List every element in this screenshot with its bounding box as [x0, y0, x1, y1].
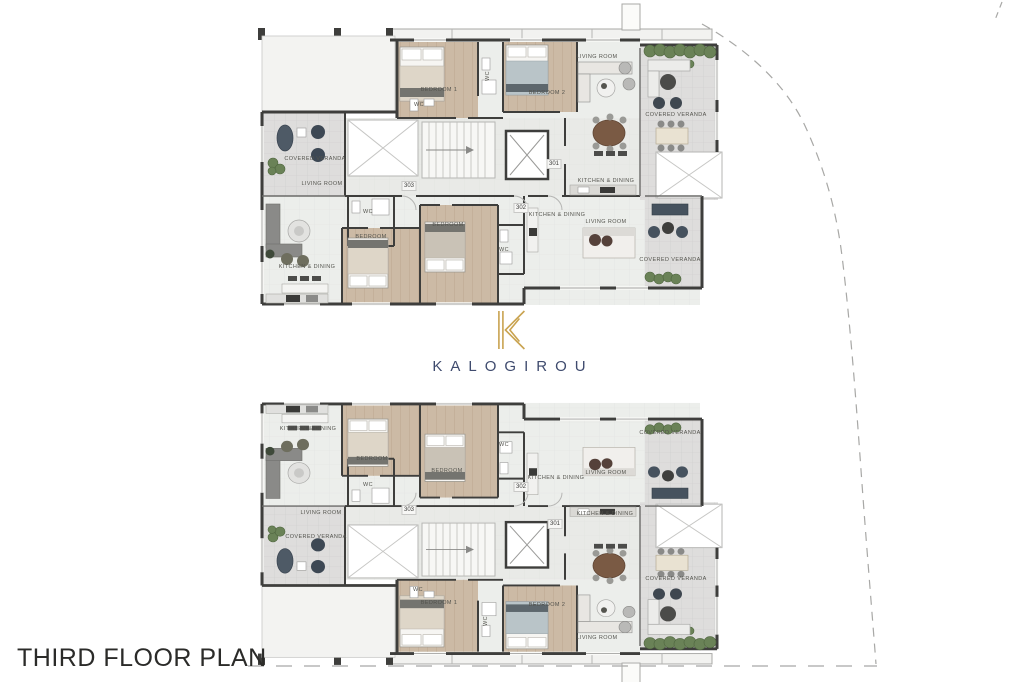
- room-label-kitchen-dining: KITCHEN & DINING: [279, 264, 336, 270]
- room-label-kitchen-dining: KITCHEN & DINING: [529, 212, 586, 218]
- room-label-bedroom-1: BEDROOM 1: [421, 600, 458, 606]
- logo-k-mark-icon: [490, 310, 528, 350]
- page-title: THIRD FLOOR PLAN: [17, 644, 267, 673]
- room-label-covered-veranda: COVERED VERANDA: [285, 534, 346, 540]
- unit-number-302: 302: [513, 203, 528, 213]
- room-label-living-room: LIVING ROOM: [576, 635, 617, 641]
- brand-logo-text: KALOGIROU: [424, 358, 593, 375]
- room-label-living-room: LIVING ROOM: [301, 181, 342, 187]
- room-label-wc: WC: [499, 442, 509, 448]
- room-label-bedroom: BEDROOM: [355, 234, 386, 240]
- room-label-living-room: LIVING ROOM: [576, 54, 617, 60]
- room-label-kitchen-dining: KITCHEN & DINING: [577, 511, 634, 517]
- room-label-bedroom: BEDROOM: [431, 468, 462, 474]
- unit-number-302: 302: [513, 482, 528, 492]
- room-label-kitchen-dining: KITCHEN & DINING: [578, 178, 635, 184]
- room-label-wc: WC: [483, 616, 489, 626]
- room-label-wc: WC: [413, 587, 423, 593]
- brand-logo: KALOGIROU: [424, 310, 593, 375]
- room-label-wc: WC: [363, 482, 373, 488]
- room-label-wc: WC: [414, 102, 424, 108]
- room-label-covered-veranda: COVERED VERANDA: [284, 156, 345, 162]
- floor-plan-bottom: [258, 403, 722, 682]
- unit-number-303: 303: [401, 181, 416, 191]
- room-label-living-room: LIVING ROOM: [300, 510, 341, 516]
- room-label-living-room: LIVING ROOM: [585, 219, 626, 225]
- room-label-kitchen-dining: KITCHEN & DINING: [280, 426, 337, 432]
- room-label-covered-veranda: COVERED VERANDA: [645, 112, 706, 118]
- room-label-wc: WC: [499, 247, 509, 253]
- room-label-living-room: LIVING ROOM: [585, 470, 626, 476]
- room-label-kitchen-dining: KITCHEN & DINING: [528, 475, 585, 481]
- room-label-covered-veranda: COVERED VERANDA: [639, 257, 700, 263]
- unit-number-301: 301: [546, 159, 561, 169]
- room-label-wc: WC: [363, 209, 373, 215]
- room-label-bedroom: BEDROOM: [356, 456, 387, 462]
- room-label-bedroom-2: BEDROOM 2: [529, 602, 566, 608]
- unit-number-303: 303: [401, 505, 416, 515]
- room-label-covered-veranda: COVERED VERANDA: [645, 576, 706, 582]
- room-label-wc: WC: [485, 71, 491, 81]
- room-label-bedroom-1: BEDROOM 1: [421, 87, 458, 93]
- room-label-covered-veranda: COVERED VERANDA: [639, 430, 700, 436]
- floor-plan-page: BEDROOM 1 WC WC BEDROOM 2 LIVING ROOM CO…: [0, 0, 1024, 682]
- unit-number-301: 301: [547, 519, 562, 529]
- room-label-bedroom-2: BEDROOM 2: [529, 90, 566, 96]
- room-label-bedroom: BEDROOM: [432, 222, 463, 228]
